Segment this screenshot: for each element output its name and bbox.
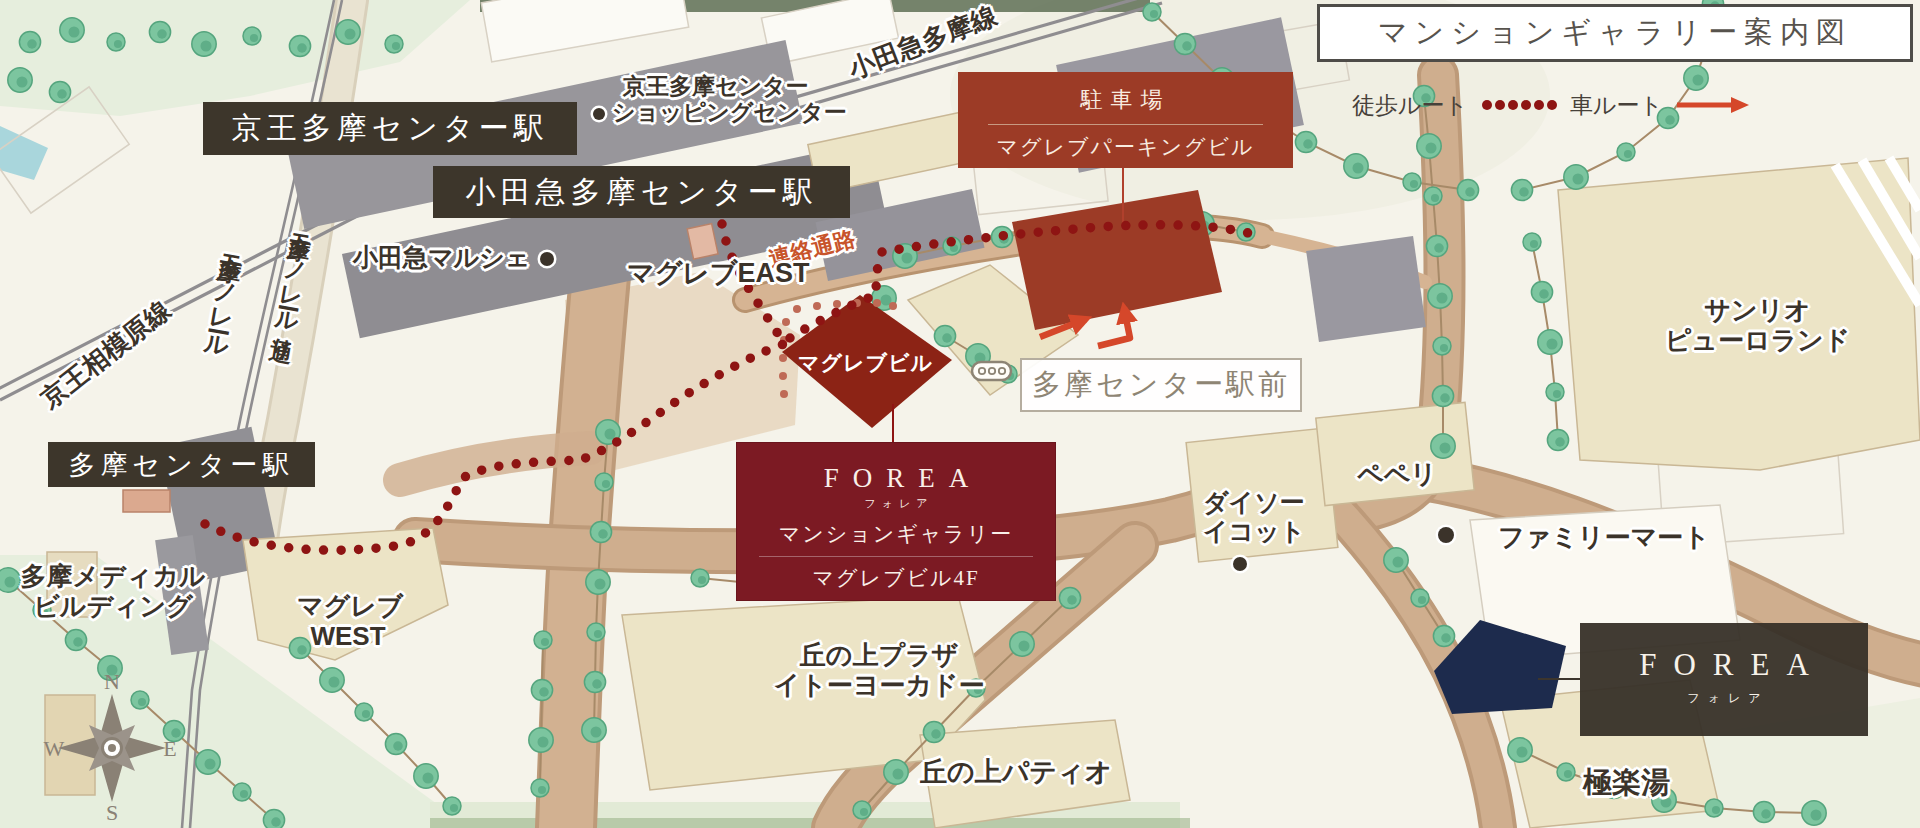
parking-info-box: 駐車場 マグレブパーキングビル — [958, 72, 1293, 168]
station-tama-center: 多摩センター駅 — [48, 442, 315, 487]
gallery-info-box: FOREA フォレア マンションギャラリー マグレブビル4F — [737, 443, 1055, 600]
gallery-brand: FOREA — [737, 443, 1055, 494]
marche-marker — [540, 252, 554, 266]
maglev-building-label: マグレブビル — [798, 349, 933, 377]
sanrio-puroland-label: サンリオ ピューロランド — [1660, 296, 1855, 356]
medical-building-label: 多摩メディカル ビルディング — [18, 562, 208, 622]
shopping-center-marker — [593, 108, 605, 120]
car-route-label: 車ルート — [1570, 90, 1663, 121]
familymart-marker — [1438, 527, 1454, 543]
site-brand: FOREA — [1580, 623, 1868, 683]
parking-building — [1012, 190, 1222, 330]
traffic-signal-icon — [972, 362, 1011, 380]
station-odakyu-tama-center: 小田急多摩センター駅 — [433, 166, 850, 218]
svg-text:N: N — [104, 669, 120, 694]
walk-route-dots-icon — [1480, 98, 1558, 112]
bus-stop-tama-center-ekimae: 多摩センター駅前 — [1020, 358, 1302, 412]
familymart-label: ファミリーマート — [1498, 523, 1710, 553]
maglev-west-label: マグレブ WEST — [297, 592, 399, 652]
maglev-east-label: マグレブEAST — [627, 258, 810, 289]
okanoue-plaza-label: 丘の上プラザ イトーヨーカドー — [772, 641, 986, 701]
car-route-arrow-icon — [1675, 96, 1751, 114]
daiso-icot-label: ダイソー イコット — [1203, 488, 1303, 546]
peperi-label: ペペリ — [1357, 460, 1437, 490]
route-legend: 徒歩ルート 車ルート — [1352, 88, 1751, 122]
marche-label: 小田急マルシェ — [353, 243, 554, 272]
forea-site-box: FOREA フォレア — [1580, 623, 1868, 736]
map-title: マンションギャラリー案内図 — [1317, 4, 1913, 62]
walk-route-label: 徒歩ルート — [1352, 90, 1468, 121]
okanoue-patio-label: 丘の上パティオ — [920, 757, 1112, 788]
svg-text:E: E — [163, 736, 176, 761]
daiso-marker — [1233, 557, 1247, 571]
station-south-exit — [687, 224, 718, 260]
shopping-center-label: 京王多摩センター ショッピングセンター — [593, 73, 847, 126]
station-keio-tama-center: 京王多摩センター駅 — [203, 102, 577, 155]
guide-map: N E S W マンションギャラリー案内図 徒歩ルート 車ルート 京王多摩センタ… — [0, 0, 1920, 828]
gokurakuyu-label: 極楽湯 — [1583, 766, 1670, 799]
svg-text:S: S — [106, 800, 118, 825]
svg-text:W: W — [44, 736, 65, 761]
